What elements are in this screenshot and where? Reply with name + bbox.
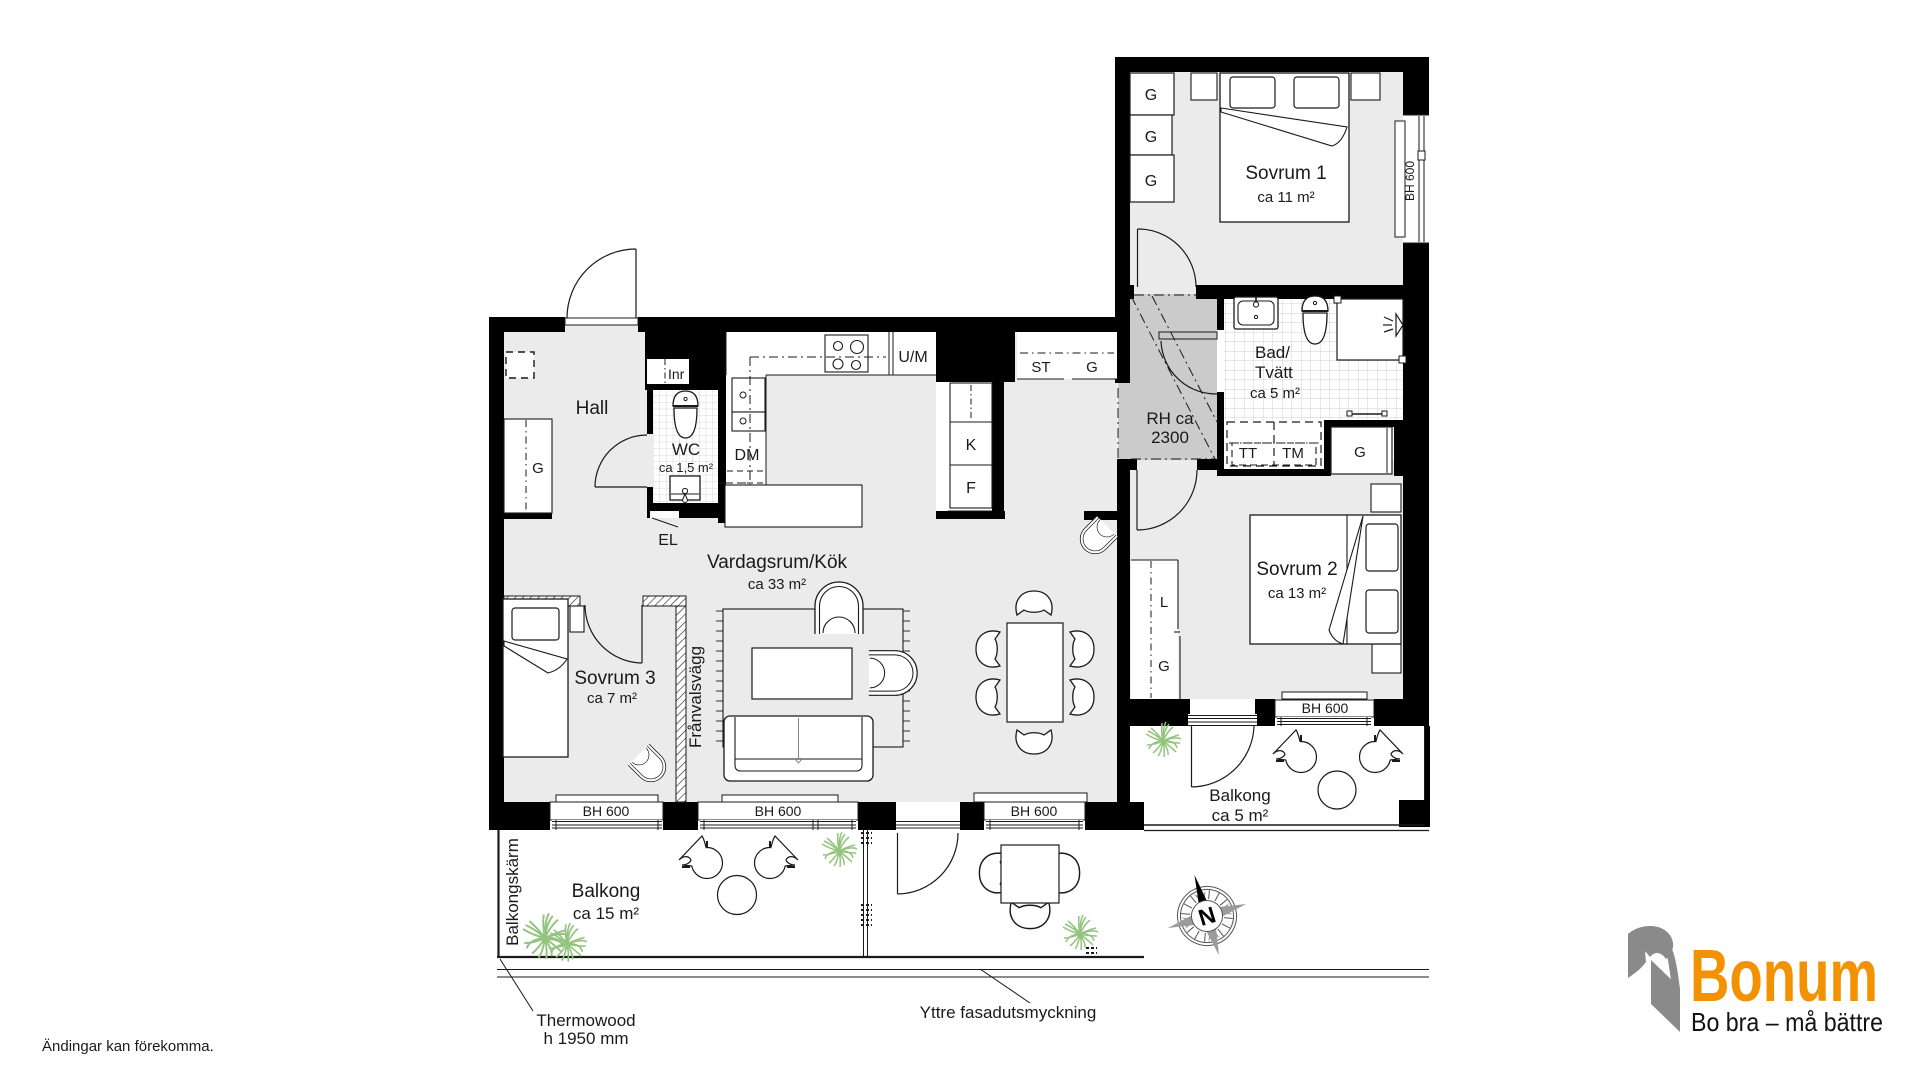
svg-text:Hall: Hall bbox=[576, 398, 609, 419]
svg-text:G: G bbox=[1354, 444, 1366, 461]
svg-text:DM: DM bbox=[735, 447, 760, 464]
svg-text:Vardagsrum/Kök: Vardagsrum/Kök bbox=[707, 552, 848, 573]
svg-text:ST: ST bbox=[1031, 359, 1050, 376]
svg-text:ca 15 m²: ca 15 m² bbox=[573, 904, 639, 923]
svg-text:h 1950 mm: h 1950 mm bbox=[543, 1029, 628, 1048]
svg-text:Balkongskärm: Balkongskärm bbox=[503, 838, 522, 946]
svg-text:RH ca: RH ca bbox=[1146, 409, 1194, 428]
svg-text:G: G bbox=[1086, 359, 1098, 376]
svg-text:ca 5 m²: ca 5 m² bbox=[1212, 806, 1269, 825]
svg-text:Ändingar kan förekomma.: Ändingar kan förekomma. bbox=[42, 1038, 214, 1055]
svg-text:Tvätt: Tvätt bbox=[1255, 363, 1293, 382]
svg-text:ca 5 m²: ca 5 m² bbox=[1250, 385, 1300, 402]
svg-text:BH 600: BH 600 bbox=[1011, 803, 1058, 819]
svg-text:BH 600: BH 600 bbox=[755, 803, 802, 819]
svg-text:Frånvalsvägg: Frånvalsvägg bbox=[686, 646, 705, 748]
svg-text:Sovrum 1: Sovrum 1 bbox=[1245, 163, 1326, 184]
svg-text:ca 1,5 m²: ca 1,5 m² bbox=[659, 460, 714, 475]
svg-text:EL: EL bbox=[658, 532, 678, 549]
svg-text:G: G bbox=[1145, 129, 1157, 146]
svg-text:ca 11 m²: ca 11 m² bbox=[1257, 189, 1314, 206]
svg-text:G: G bbox=[1145, 87, 1157, 104]
svg-text:BH 600: BH 600 bbox=[1302, 700, 1349, 716]
svg-text:Yttre fasadutsmyckning: Yttre fasadutsmyckning bbox=[920, 1003, 1097, 1022]
svg-text:Balkong: Balkong bbox=[572, 881, 641, 902]
svg-text:TM: TM bbox=[1282, 445, 1304, 462]
svg-text:ca 7 m²: ca 7 m² bbox=[587, 690, 637, 707]
svg-text:G: G bbox=[1145, 173, 1157, 190]
svg-text:ca 33 m²: ca 33 m² bbox=[748, 576, 806, 593]
svg-text:K: K bbox=[966, 437, 977, 454]
svg-text:ca 13 m²: ca 13 m² bbox=[1268, 585, 1326, 602]
svg-text:G: G bbox=[532, 460, 544, 477]
svg-text:Sovrum 3: Sovrum 3 bbox=[574, 668, 655, 689]
svg-text:Sovrum 2: Sovrum 2 bbox=[1256, 559, 1337, 580]
svg-text:Inr: Inr bbox=[668, 366, 685, 382]
svg-text:F: F bbox=[966, 480, 976, 497]
svg-text:L: L bbox=[1160, 594, 1168, 611]
svg-text:Bonum: Bonum bbox=[1690, 934, 1878, 1017]
svg-text:TT: TT bbox=[1239, 445, 1257, 462]
svg-text:2300: 2300 bbox=[1151, 428, 1189, 447]
svg-text:G: G bbox=[1158, 658, 1170, 675]
svg-text:Bad/: Bad/ bbox=[1255, 343, 1290, 362]
svg-text:Bo bra – må bättre: Bo bra – må bättre bbox=[1691, 1007, 1883, 1037]
svg-text:Balkong: Balkong bbox=[1209, 786, 1270, 805]
svg-text:U/M: U/M bbox=[898, 349, 927, 366]
svg-text:WC: WC bbox=[672, 440, 700, 459]
svg-text:BH 600: BH 600 bbox=[583, 803, 630, 819]
svg-text:Thermowood: Thermowood bbox=[536, 1011, 635, 1030]
